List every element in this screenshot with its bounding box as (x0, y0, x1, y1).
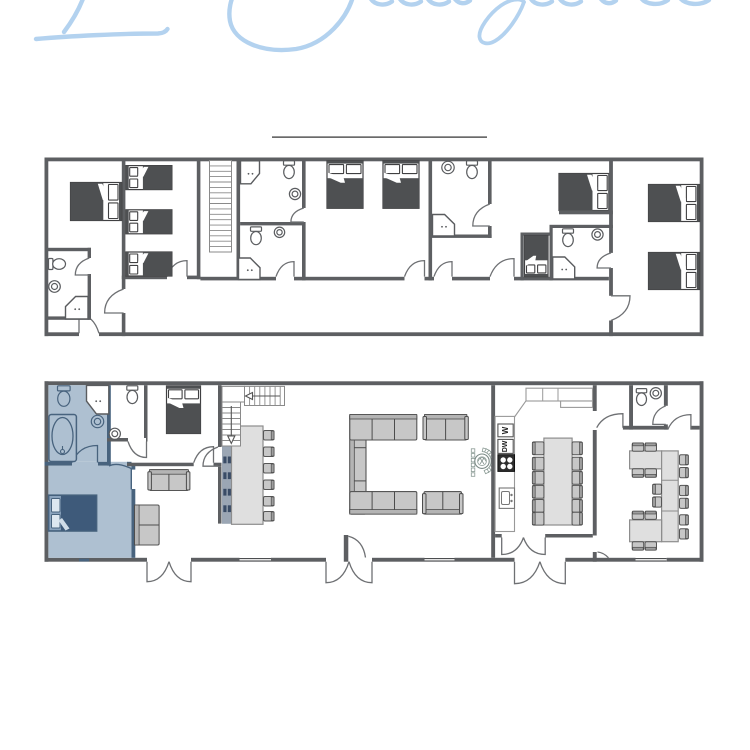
svg-text:W: W (501, 426, 510, 434)
svg-text:DW: DW (502, 440, 509, 452)
